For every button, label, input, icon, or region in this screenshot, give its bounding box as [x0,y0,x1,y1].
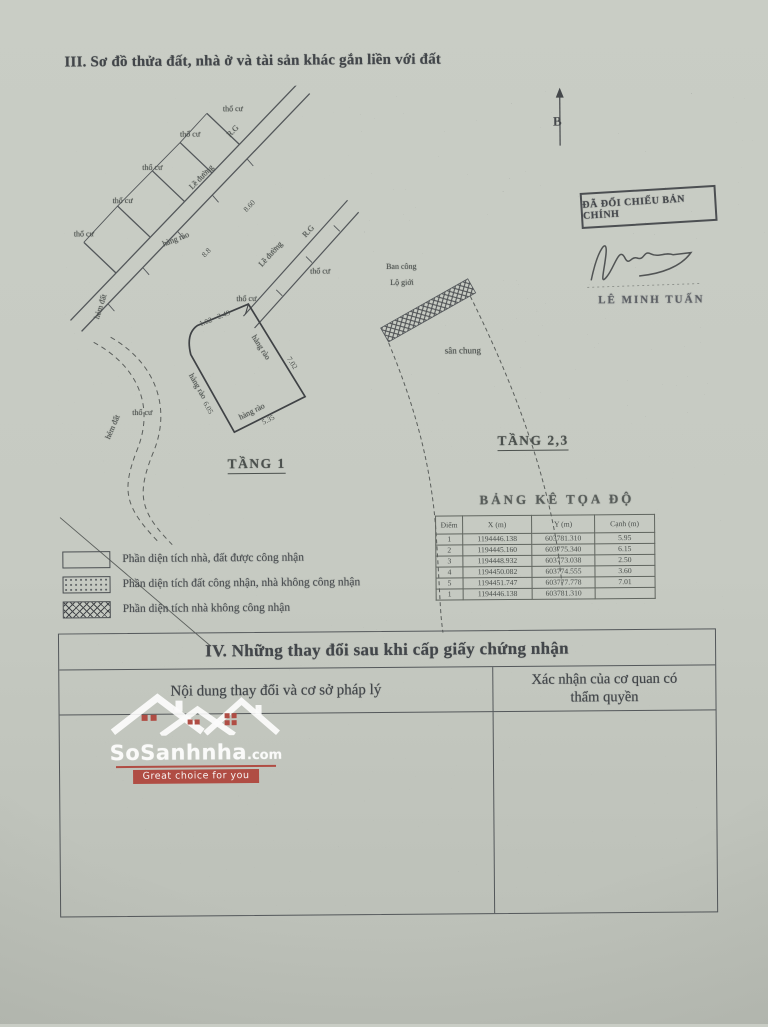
svg-text:B: B [553,114,562,129]
cell-y: 603773.038 [532,555,595,566]
cell-diem: 1 [436,589,463,600]
cell-x: 1194451.747 [463,577,532,589]
cell-diem: 3 [436,556,463,567]
cell-diem: 1 [436,534,463,545]
cell-y: 603781.310 [532,533,595,544]
map-label-tho-cu: thổ cư [132,408,152,417]
cell-canh: 2.50 [595,554,655,565]
watermark-tagline: Great choice for you [133,769,259,784]
verification-stamp: ĐÃ ĐỐI CHIẾU BẢN CHÍNH [580,185,718,229]
cell-diem: 2 [436,545,463,556]
legend-item-recognized: Phần diện tích nhà, đất được công nhận [62,549,360,567]
table-row: 1 1194446.138 603781.310 [436,587,655,600]
map-label-ban-cong: Ban công [386,262,417,271]
table-header-row: Điểm X (m) Y (m) Cạnh (m) [436,514,655,534]
map-label-hem-dat: hẻm đất [92,293,108,320]
legend-swatch-plain [62,551,110,568]
cell-canh: 6.15 [595,543,655,554]
cell-diem: 4 [436,567,463,578]
signature-icon [583,229,708,292]
legend-label: Phần diện tích đất công nhận, nhà không … [123,576,361,590]
legend-swatch-crosshatch [63,601,111,618]
balcony-hatched-strip [380,279,476,342]
cell-x: 1194446.138 [463,533,532,545]
cell-x: 1194446.138 [463,588,532,600]
cell-canh [595,587,655,598]
cell-x: 1194445.160 [463,544,532,556]
map-label-hang-rao: hàng rào [187,372,208,401]
changes-col-header-authority: Xác nhận của cơ quan có thẩm quyền [492,665,715,712]
scanned-document-sheet: III. Sơ đồ thửa đất, nhà ở và tài sản kh… [0,0,768,1027]
signer-name: LÊ MINH TUẤN [586,293,716,306]
map-label-tho-cu: thổ cư [236,294,256,303]
map-label-le-duong: Lề đường [187,163,215,191]
legend-swatch-dotted [62,576,110,593]
map-label-tho-cu: thổ cư [223,104,243,113]
dim-label: 2.49 [216,308,231,321]
watermark-tld: .com [247,748,282,763]
cell-y: 603775.340 [532,544,595,555]
cell-y: 603781.310 [532,588,595,599]
cell-x: 1194450.082 [463,566,532,578]
watermark-divider [116,765,276,768]
col-header-canh: Cạnh (m) [595,514,655,532]
map-legend: Phần diện tích nhà, đất được công nhận P… [62,549,360,617]
watermark-brand: SoSanhnha [110,740,248,765]
stamp-text: ĐÃ ĐỐI CHIẾU BẢN CHÍNH [582,192,715,222]
map-label-tho-cu: thổ cư [180,129,200,138]
changes-body-right-empty [493,710,718,913]
dim-label: 1.02 [198,315,213,328]
cell-y: 603777.778 [532,577,595,588]
watermark-wordmark: SoSanhnha .com [108,740,284,765]
section-4-heading: IV. Những thay đổi sau khi cấp giấy chứn… [59,629,715,670]
houses-icon [107,687,283,736]
cell-canh: 3.60 [595,565,655,576]
cell-x: 1194448.932 [463,555,532,567]
map-label-san-chung: sân chung [445,345,481,355]
legend-item-not-recognized: Phần diện tích nhà không công nhận [63,599,361,617]
floor-2-3-label: TẦNG 2,3 [497,433,568,452]
legend-label: Phần diện tích nhà không công nhận [123,602,290,615]
dim-label: 5.35 [260,413,276,427]
map-label-tho-cu: thổ cư [142,163,162,172]
dim-label: 7.02 [285,355,300,371]
coordinate-table: Điểm X (m) Y (m) Cạnh (m) 1 1194446.138 … [435,514,656,601]
legend-label: Phần diện tích nhà, đất được công nhận [122,552,304,565]
dim-label: 6.05 [201,400,215,416]
dim-label: 8.8 [200,246,213,259]
cell-canh: 7.01 [595,576,655,587]
map-label-tho-cu: thổ cư [310,266,330,275]
map-label-le-duong: Lề đường [257,240,285,269]
col-header-x: X (m) [463,515,532,534]
section-3-heading: III. Sơ đồ thửa đất, nhà ở và tài sản kh… [64,52,441,72]
map-label-tho-cu: thổ cư [113,196,133,205]
legend-item-land-only: Phần diện tích đất công nhận, nhà không … [62,574,360,592]
map-label-lo-gioi: Lộ giới [390,278,414,287]
cell-diem: 5 [436,578,463,589]
cell-canh: 5.95 [595,532,655,543]
dim-label: 8.60 [241,198,257,214]
map-label-hang-rao: hàng rào [250,333,272,361]
map-label-tho-cu: thổ cư [74,229,94,238]
watermark-logo: SoSanhnha .com Great choice for you [107,687,284,785]
map-label-rg: R.G [225,123,241,139]
north-arrow-icon: B [553,88,564,146]
coordinate-table-title: BẢNG KÊ TỌA ĐỘ [462,491,652,508]
map-label-rg: R.G [301,223,317,239]
cell-y: 603774.555 [532,566,595,577]
map-label-hem-dat: hẻm đất [103,413,121,440]
floor-1-label: TẦNG 1 [228,456,286,474]
col-header-y: Y (m) [532,515,595,533]
map-label-hang-rao: hàng rào [161,230,190,249]
col-header-diem: Điểm [436,516,463,534]
